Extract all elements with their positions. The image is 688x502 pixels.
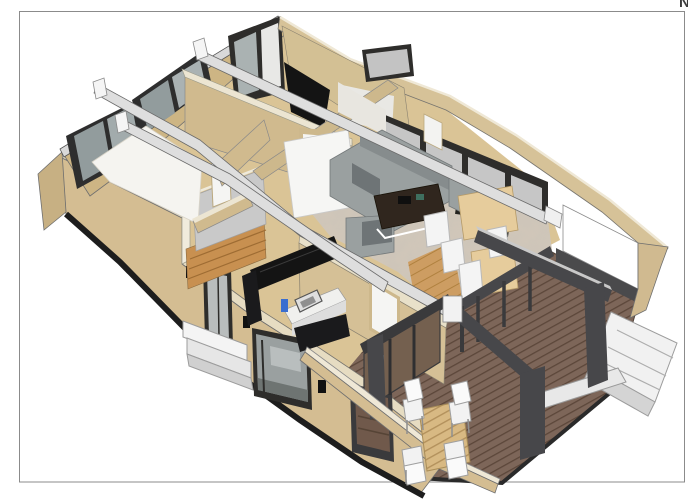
svg-text:N: N (679, 0, 688, 11)
